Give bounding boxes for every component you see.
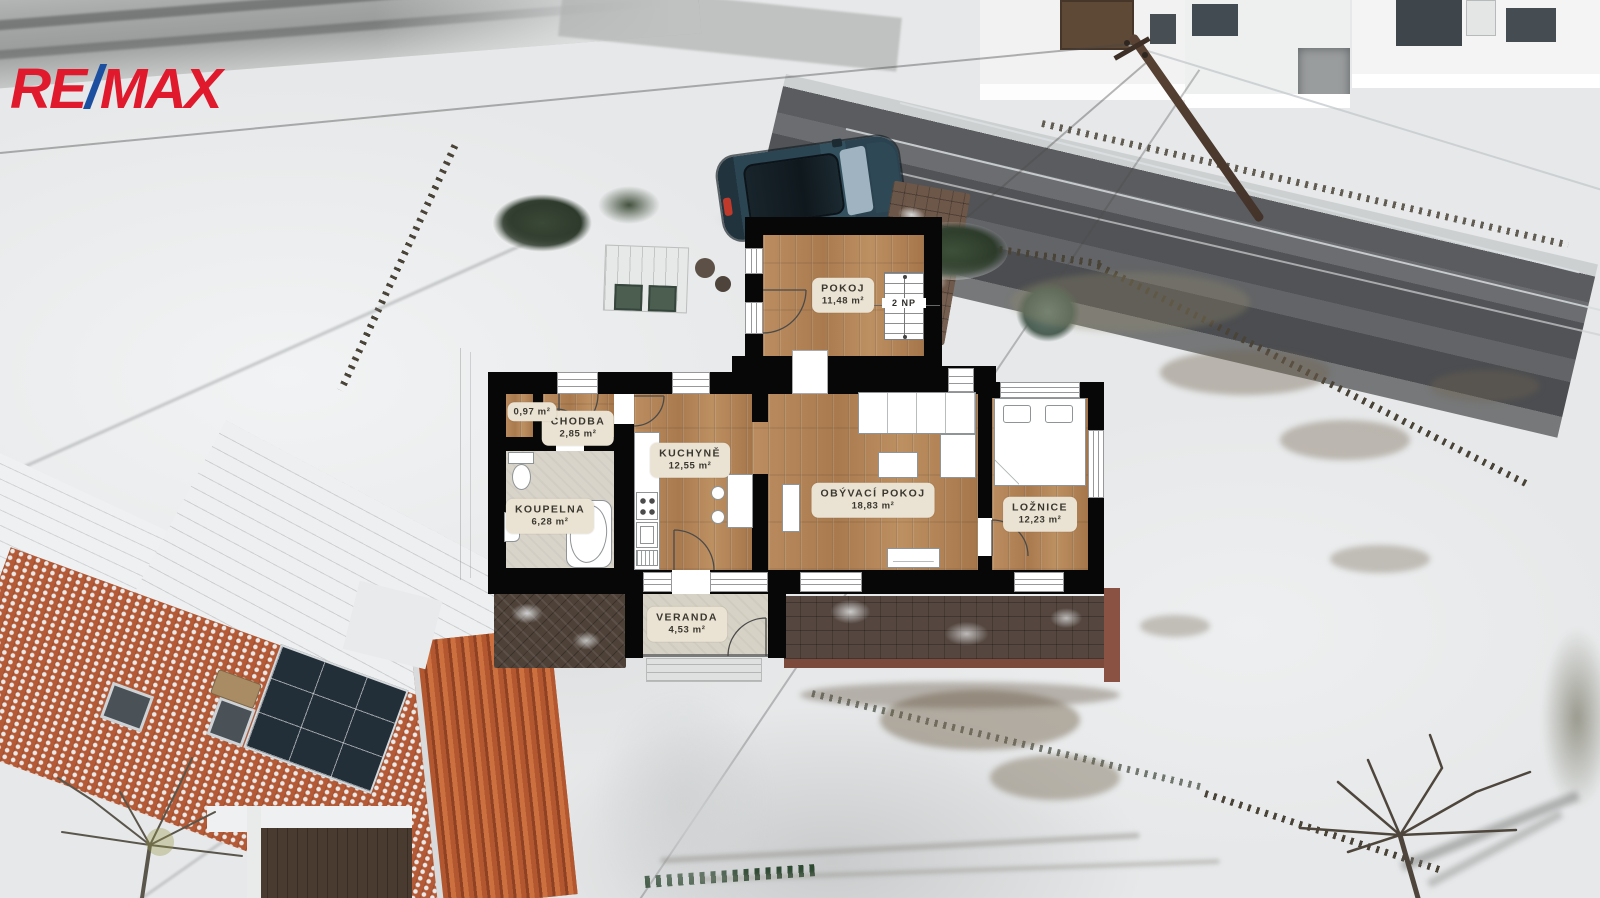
remax-logo: RE/MAX [10,58,221,118]
wall [488,568,626,594]
stair-dot [903,275,907,279]
label-veranda: VERANDA 4,53 m² [647,607,727,642]
dining-table [727,474,753,528]
room-area: 12,55 m² [659,461,721,472]
room-area: 0,97 m² [514,406,551,417]
label-kuchyne: KUCHYNĚ 12,55 m² [650,443,730,478]
room-area: 18,83 m² [821,501,926,512]
bed [994,398,1086,486]
sofa [858,392,976,434]
veranda-edge [643,654,768,657]
window [643,572,672,592]
wall [732,356,942,394]
logo-slash: / [85,54,100,121]
label-koupelna: KOUPELNA 6,28 m² [506,499,594,534]
window [557,372,598,394]
window [948,368,974,392]
wall [924,217,942,367]
room-name: KOUPELNA [515,504,585,517]
window [710,572,768,592]
chair [711,510,725,524]
wall [752,394,768,422]
room-name: OBÝVACÍ POKOJ [821,488,926,501]
toilet [508,452,534,464]
wall [488,372,506,594]
window [1000,382,1080,398]
label-obyvaci-pokoj: OBÝVACÍ POKOJ 18,83 m² [812,483,935,518]
room-area: 2,85 m² [551,429,605,440]
room-area: 4,53 m² [656,625,718,636]
toilet-bowl [512,464,531,490]
stove [636,492,658,520]
room-name: CHODBA [551,416,605,429]
label-pokoj: POKOJ 11,48 m² [812,278,874,313]
wall [625,592,643,658]
door-opening [614,394,634,424]
coffee-table [878,452,918,478]
wall [745,217,942,235]
label-wc: 0,97 m² [508,402,557,421]
stairs-label: 2 NP [882,298,926,308]
window [745,302,763,334]
sofa [940,434,976,478]
blanket-fold [995,459,1019,485]
room-name: POKOJ [821,283,865,296]
floor-plan: 2 NP [0,0,1600,898]
pillow [1045,405,1073,423]
chair [711,486,725,500]
dish-rack [636,550,658,566]
kitchen-sink [636,522,658,548]
pillow [1003,405,1031,423]
wall [768,592,786,658]
label-loznice: LOŽNICE 12,23 m² [1003,497,1077,532]
logo-re: RE [10,57,85,121]
room-name: KUCHYNĚ [659,448,721,461]
door-opening [672,570,710,594]
window [745,248,763,274]
window [800,572,862,592]
door-opening [978,518,992,556]
window [1088,430,1104,498]
room-area: 6,28 m² [515,517,585,528]
logo-max: MAX [100,57,221,121]
room-name: VERANDA [656,612,718,625]
wall [752,474,768,572]
window [1014,572,1064,592]
window [672,372,710,394]
room-name: LOŽNICE [1012,502,1068,515]
passage [792,350,828,394]
stair-dot [903,335,907,339]
wall [745,217,763,374]
shelf [782,484,800,532]
room-area: 12,23 m² [1012,515,1068,526]
room-area: 11,48 m² [821,296,865,307]
tv-stand [887,548,940,568]
aerial-photo: 2 NP [0,0,1600,898]
